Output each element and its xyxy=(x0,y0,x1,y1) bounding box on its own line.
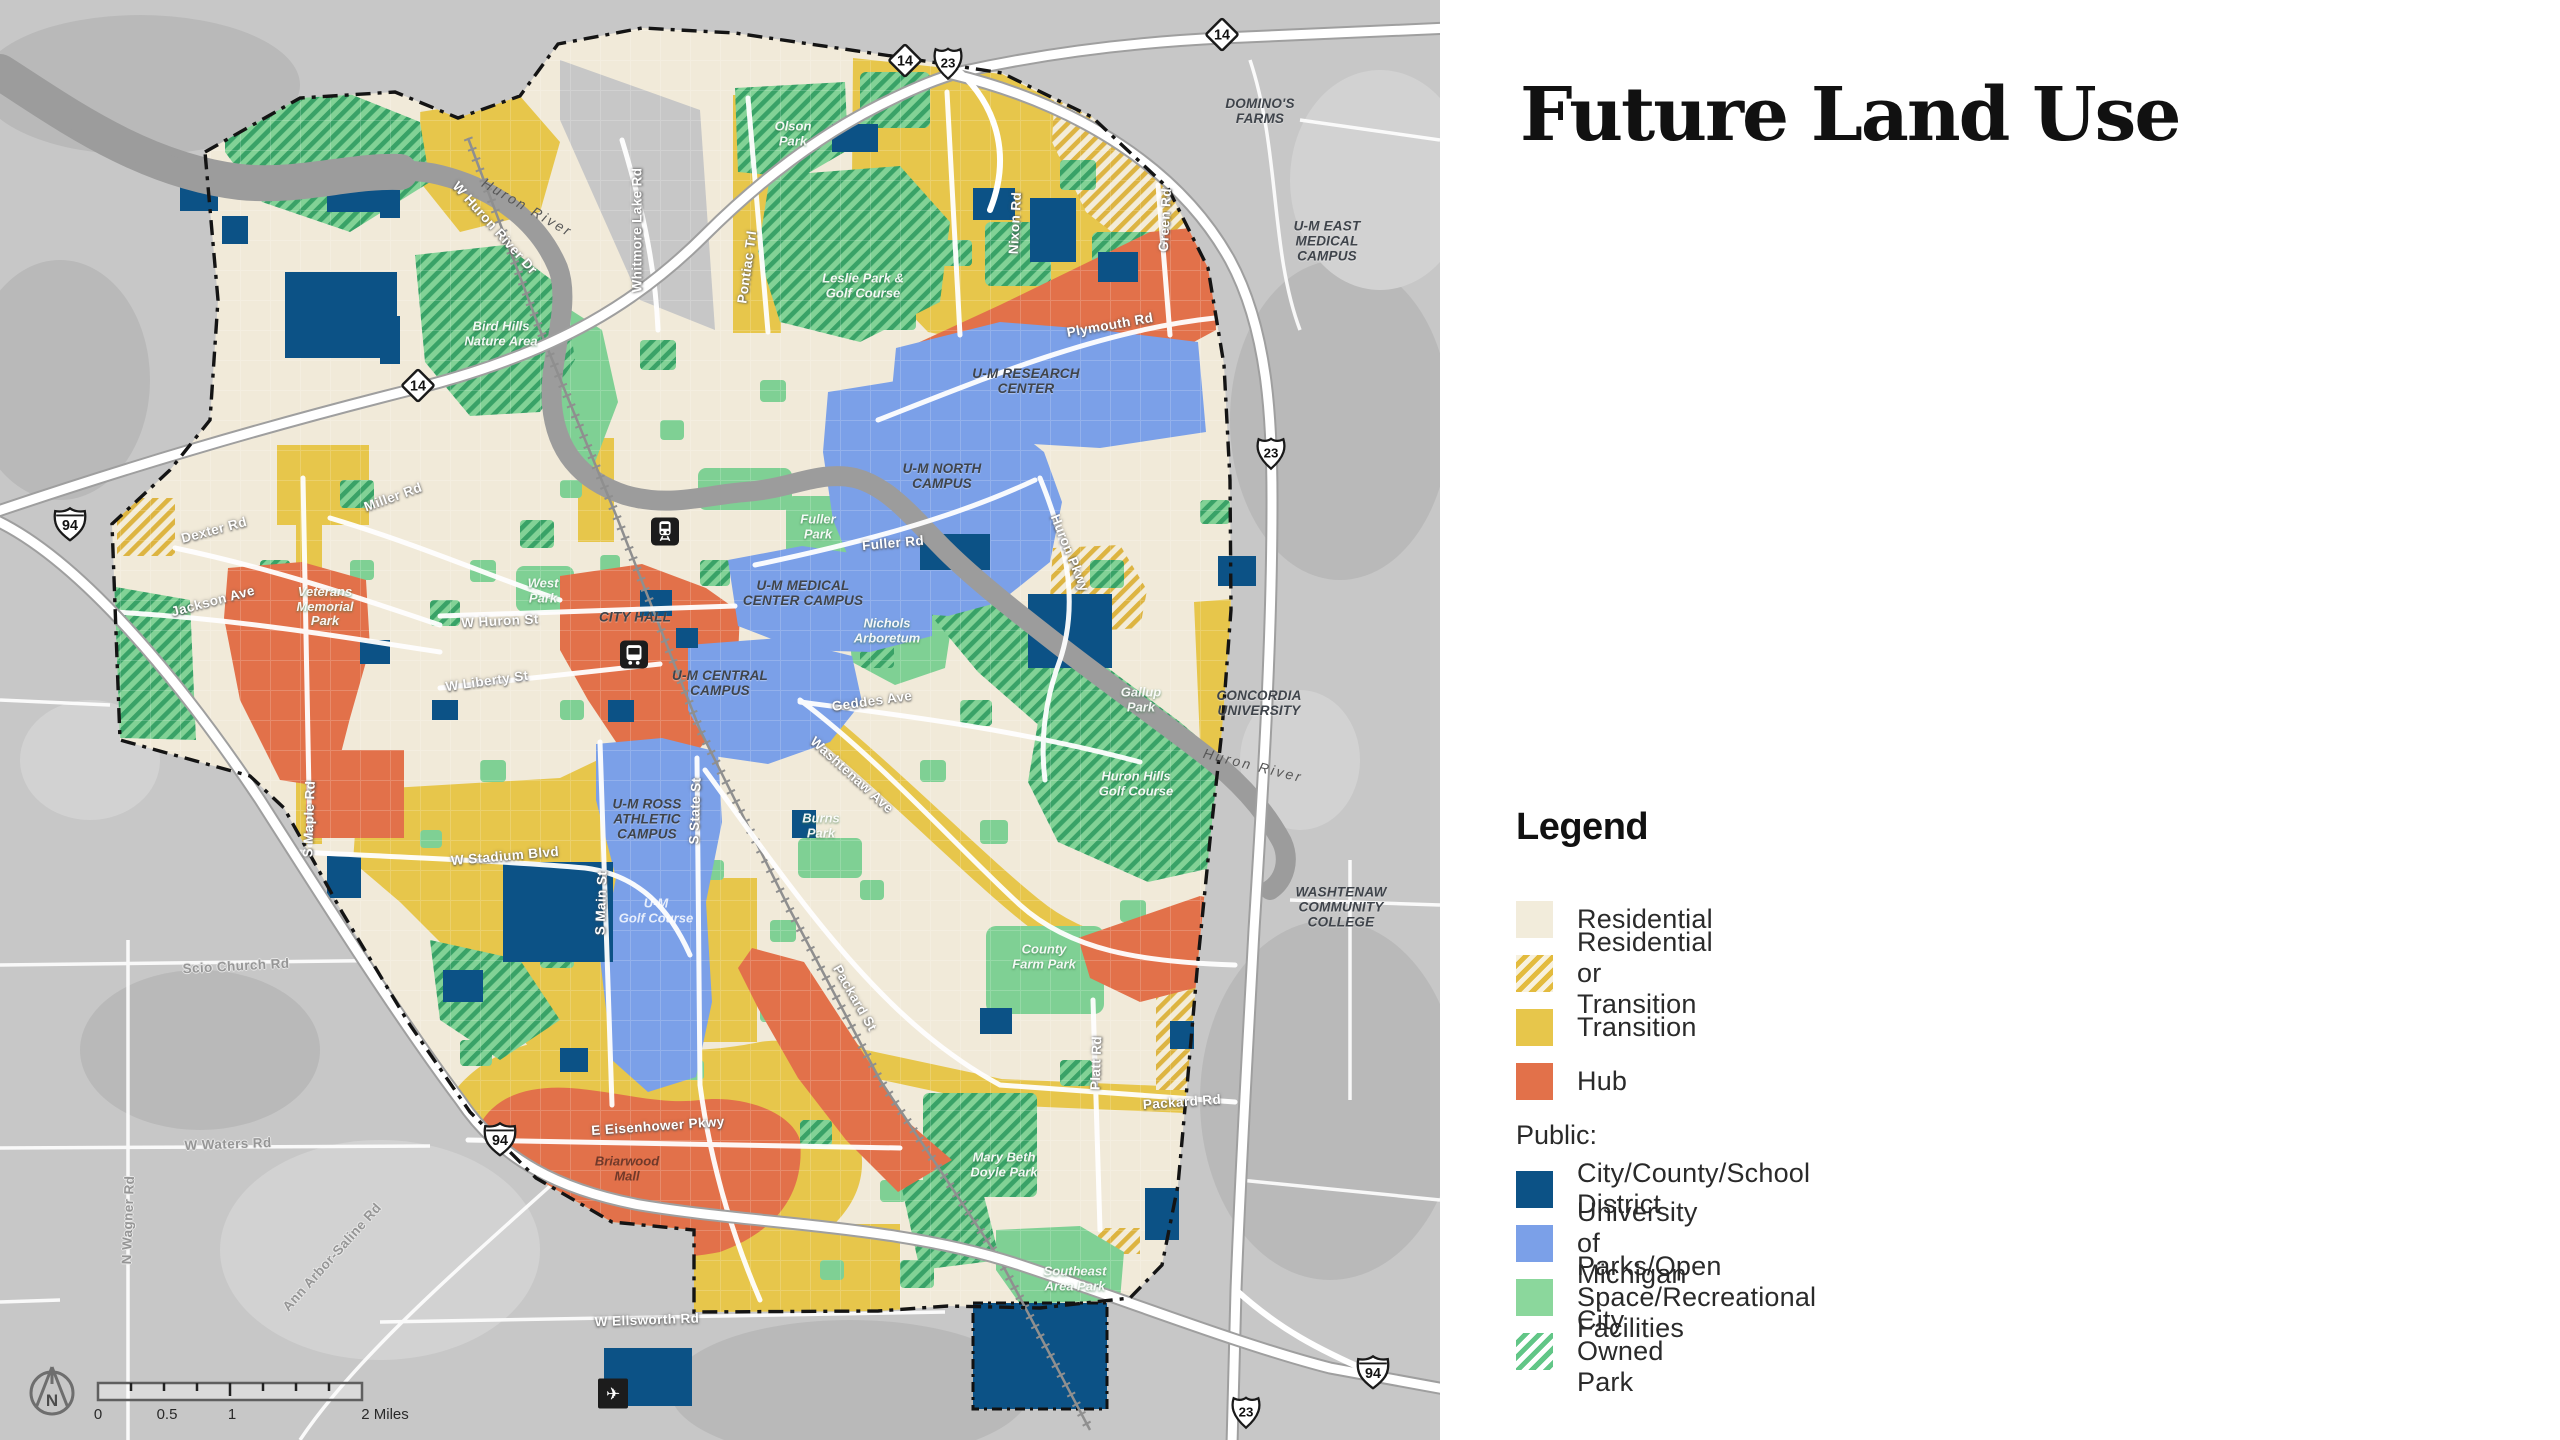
legend-item-residential-or-transition: Residential or Transition xyxy=(1516,954,1713,992)
map-label: Huron River xyxy=(479,176,575,241)
legend-swatch-transition xyxy=(1516,1009,1553,1046)
map-label: Fuller Park xyxy=(800,512,835,541)
svg-text:14: 14 xyxy=(1214,27,1230,43)
map-label: U-M NORTH CAMPUS xyxy=(903,461,982,491)
legend-label: Residential or Transition xyxy=(1577,927,1713,1020)
svg-text:94: 94 xyxy=(492,1133,508,1149)
map-label: Huron Pkwy xyxy=(1048,512,1093,594)
legend-label: Transition xyxy=(1577,1012,1697,1043)
state-route-14-shield-icon: 14 xyxy=(1201,14,1243,61)
map-overlay: W Huron River DrWhitmore Lake RdPontiac … xyxy=(0,0,1440,1440)
legend-item-parks-open-space: Parks/Open Space/Recreational Facilities xyxy=(1516,1278,1816,1316)
map-label: S Maple Rd xyxy=(300,780,318,857)
map-label: County Farm Park xyxy=(1012,942,1076,971)
legend-swatch-residential-or-transition xyxy=(1516,955,1553,992)
legend-swatch-hub xyxy=(1516,1063,1553,1100)
side-panel: Future Land Use Legend Residential Resid… xyxy=(1440,0,2560,1440)
map-label: W Liberty St xyxy=(445,668,530,695)
legend-item-transition: Transition xyxy=(1516,1008,1697,1046)
map-label: W Waters Rd xyxy=(184,1135,272,1153)
legend-swatch-university xyxy=(1516,1225,1553,1262)
map-label: E Eisenhower Pkwy xyxy=(591,1114,725,1138)
legend-swatch-parks xyxy=(1516,1279,1553,1316)
map-label: Huron Hills Golf Course xyxy=(1099,769,1173,798)
svg-text:14: 14 xyxy=(897,53,913,69)
bus-icon xyxy=(620,641,648,674)
legend-swatch-city-county-school xyxy=(1516,1171,1553,1208)
map-label: Dexter Rd xyxy=(180,514,249,546)
map-label: Packard St xyxy=(830,962,880,1033)
map-label: S State St xyxy=(686,777,703,845)
map-label: Whitmore Lake Rd xyxy=(629,168,644,293)
us-route-23-shield-icon: 23 xyxy=(1252,435,1290,478)
train-icon xyxy=(651,518,679,551)
state-route-14-shield-icon: 14 xyxy=(884,40,926,87)
map-label: Jackson Ave xyxy=(170,583,257,620)
map-label: Platt Rd xyxy=(1088,1036,1105,1091)
map-label: U-M EAST MEDICAL CAMPUS xyxy=(1271,218,1384,263)
us-route-23-shield-icon: 23 xyxy=(929,45,967,88)
svg-text:✈: ✈ xyxy=(606,1385,620,1405)
us-route-23-shield-icon: 23 xyxy=(1227,1394,1265,1437)
svg-text:23: 23 xyxy=(1264,445,1279,460)
map-label: U-M RESEARCH CENTER xyxy=(972,366,1079,396)
map-label: Scio Church Rd xyxy=(182,956,290,977)
map-label: N Wagner Rd xyxy=(119,1175,137,1264)
svg-text:23: 23 xyxy=(1239,1404,1254,1419)
map-label: Pontiac Trl xyxy=(734,230,759,305)
legend-item-hub: Hub xyxy=(1516,1062,1627,1100)
map-label: Olson Park xyxy=(775,119,812,148)
map-label: Nichols Arboretum xyxy=(854,616,920,645)
map-label: W Stadium Blvd xyxy=(450,844,559,868)
map-label: Southeast Area Park xyxy=(1044,1264,1107,1293)
map-label: Briarwood Mall xyxy=(595,1154,659,1183)
svg-text:23: 23 xyxy=(941,55,956,70)
map-label: Nixon Rd xyxy=(1006,191,1024,254)
state-route-14-shield-icon: 14 xyxy=(397,365,439,412)
map-label: DOMINO'S FARMS xyxy=(1225,96,1294,126)
map-label: Veterans Memorial Park xyxy=(296,585,353,629)
map-label: Ann Arbor-Saline Rd xyxy=(280,1200,385,1314)
map-label: Huron River xyxy=(1202,746,1305,786)
map-label: CONCORDIA UNIVERSITY xyxy=(1216,688,1301,718)
map-label: Gallup Park xyxy=(1121,685,1161,714)
map-label: Packard Rd xyxy=(1142,1092,1221,1113)
legend-label: Hub xyxy=(1577,1066,1627,1097)
map-label: U-M ROSS ATHLETIC CAMPUS xyxy=(612,796,681,841)
legend: Legend Residential Residential or Transi… xyxy=(1516,806,1648,887)
interstate-94-shield-icon: 94 xyxy=(1352,1352,1394,1399)
interstate-94-shield-icon: 94 xyxy=(49,504,91,551)
svg-text:94: 94 xyxy=(62,518,78,534)
legend-swatch-city-owned-park xyxy=(1516,1333,1553,1370)
map-label: U-M CENTRAL CAMPUS xyxy=(672,668,768,698)
map-label: U-M MEDICAL CENTER CAMPUS xyxy=(743,578,863,608)
svg-text:94: 94 xyxy=(1365,1366,1381,1382)
legend-subheading-public: Public: xyxy=(1516,1116,1597,1154)
map-label: Miller Rd xyxy=(362,480,424,515)
map-label: WASHTENAW COMMUNITY COLLEGE xyxy=(1295,884,1386,929)
map-label: CITY HALL xyxy=(599,609,671,624)
legend-item-city-owned-park: City Owned Park xyxy=(1516,1332,1664,1370)
map-label: W Huron River Dr xyxy=(450,179,541,277)
plane-icon: ✈ xyxy=(598,1379,628,1414)
map-label: Bird Hills Nature Area xyxy=(464,319,537,348)
interstate-94-shield-icon: 94 xyxy=(479,1119,521,1166)
map-label: Green Rd xyxy=(1156,188,1174,253)
legend-heading: Legend xyxy=(1516,806,1648,849)
map-label: Plymouth Rd xyxy=(1066,310,1155,340)
map-label: W Huron St xyxy=(461,611,539,630)
map-label: Leslie Park & Golf Course xyxy=(822,271,904,300)
map-label: West Park xyxy=(528,576,559,605)
map-label: S Main St xyxy=(592,871,609,936)
legend-label: City Owned Park xyxy=(1577,1305,1664,1398)
map-label: Geddes Ave xyxy=(831,688,913,714)
svg-text:14: 14 xyxy=(410,378,426,394)
future-land-use-page: { "panel": { "title": "Future Land Use",… xyxy=(0,0,2560,1440)
legend-swatch-residential xyxy=(1516,901,1553,938)
page-title: Future Land Use xyxy=(1520,72,2179,158)
map-label: W Ellsworth Rd xyxy=(594,1311,699,1330)
map-label: Mary Beth Doyle Park xyxy=(970,1150,1037,1179)
map-label: Burns Park xyxy=(802,811,840,840)
map-label: Fuller Rd xyxy=(861,533,924,553)
land-use-map[interactable]: N W Huron River DrWhitmore Lake RdPontia… xyxy=(0,0,1440,1440)
legend-subheading-label: Public: xyxy=(1516,1120,1597,1151)
map-label: Washtenaw Ave xyxy=(807,734,896,816)
map-label: U-M Golf Course xyxy=(619,896,693,925)
